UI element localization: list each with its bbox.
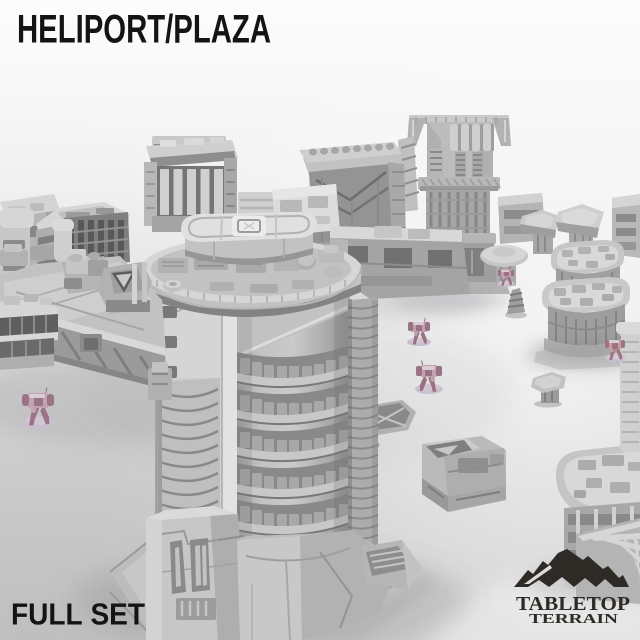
svg-text:FULL SET: FULL SET	[11, 598, 145, 632]
svg-text:HELIPORT/PLAZA: HELIPORT/PLAZA	[17, 8, 271, 52]
svg-text:TERRAIN: TERRAIN	[529, 611, 618, 626]
